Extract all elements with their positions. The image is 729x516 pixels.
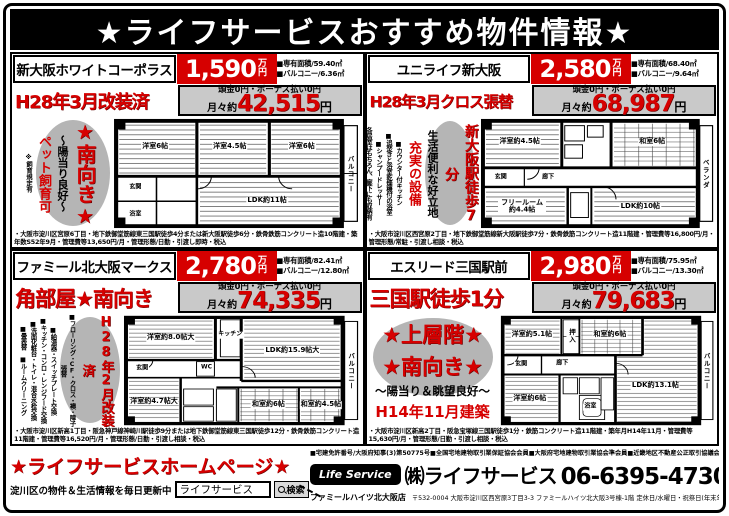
price-unit: 万円 bbox=[258, 60, 268, 79]
payment-box: 頭金0円・ボーナス払い0円 月々約 42,515 円 bbox=[178, 85, 362, 116]
feature-item: ■追焚きと浴室乾燥機付の浴室 bbox=[384, 117, 393, 230]
room-label: 洋室約4.5帖 bbox=[499, 139, 541, 147]
company-address: 〒532-0004 大阪市淀川区西宮原3丁目3-3 ファミールハイツ北大阪3号棟… bbox=[412, 493, 719, 502]
feature-equipment: 充実の設備 bbox=[404, 117, 423, 230]
spec-balcony: ■バルコニー/12.80㎡ bbox=[277, 266, 363, 276]
room-label: 和室6帖 bbox=[638, 139, 666, 147]
footer-homepage-block: ★ライフサービスホームページ★ 淀川区の物件＆生活情報を毎日更新中 検索 bbox=[10, 448, 310, 502]
feature-item: ■カウンター付キッチン bbox=[394, 117, 403, 230]
panel-subheader: 三国駅徒歩1分 頭金0円・ボーナス払い0円 月々約 79,683 円 bbox=[367, 281, 718, 314]
footer-company-block: ■宅建免許番号/大阪府知事(3)第50775号■全国宅地建物取引業保証協会会員■… bbox=[310, 448, 719, 502]
vertical-features: 新大阪駅徒歩7分 生活便利な好立地 充実の設備 ■カウンター付キッチン ■追焚き… bbox=[367, 117, 479, 230]
fine-print: ・大阪市淀川区宮原6丁目・地下鉄御堂筋線東三国駅徒歩4分または新大阪駅徒歩6分・… bbox=[12, 230, 363, 247]
catch-copy: H28年3月改装済 bbox=[12, 84, 177, 117]
feature-item: ■畳表替 ■ルームクリーニング bbox=[19, 314, 28, 427]
property-panel-shinosaka-white: 新大阪ホワイトコーポラス 1,590 万円 ■専有面積/59.40㎡ ■バルコニ… bbox=[10, 52, 365, 249]
feature-column: H28年2月改装済 ■フローリング・CF・クロス・襖・障子張替 ■給湯器・スイッ… bbox=[12, 314, 122, 427]
monthly-payment: 月々約 68,987 円 bbox=[562, 93, 687, 116]
feature-item: ■シャンプードレッサー bbox=[374, 117, 383, 230]
fine-print: ・大阪市淀川区新高2丁目・阪急宝塚線三国駅徒歩1分・鉄筋コンクリート造11階建・… bbox=[367, 427, 718, 444]
room-label: LDK約10帖 bbox=[620, 203, 661, 211]
feature-upper-floor: ★上層階★ bbox=[382, 319, 483, 349]
feature-item: ■給湯器・スイッチプレート交換 bbox=[49, 314, 58, 427]
room-label: フリールーム約4.4帖 bbox=[498, 199, 546, 214]
panel-subheader: 角部屋★南向き 頭金0円・ボーナス払い0円 月々約 74,335 円 bbox=[12, 281, 363, 314]
floorplan: 洋室約8.0帖大 キッチン LDK約15.9帖大 玄関 WC 洋室約4.7帖大 … bbox=[123, 315, 362, 426]
spec-area: ■専有面積/59.40㎡ bbox=[277, 59, 363, 69]
search-row: 淀川区の物件＆生活情報を毎日更新中 検索 bbox=[10, 481, 310, 498]
vertical-features: H28年2月改装済 ■フローリング・CF・クロス・襖・障子張替 ■給湯器・スイッ… bbox=[18, 314, 117, 427]
property-name: 新大阪ホワイトコーポラス bbox=[13, 55, 176, 83]
update-note: 淀川区の物件＆生活情報を毎日更新中 bbox=[10, 483, 172, 497]
room-label: 洋室4.5帖 bbox=[212, 143, 247, 151]
feature-pets-note: ※飼育規定有 bbox=[24, 117, 33, 230]
monthly-amount: 42,515 bbox=[237, 93, 320, 116]
company-logo: Life Service bbox=[310, 464, 401, 485]
monthly-unit: 円 bbox=[320, 101, 332, 113]
spec-balcony: ■バルコニー/9.64㎡ bbox=[631, 69, 717, 79]
room-label: 浴室 bbox=[583, 404, 597, 411]
payment-box: 頭金0円・ボーナス払い0円 月々約 79,683 円 bbox=[532, 282, 716, 313]
panel-header: ファミール北大阪マークス 2,780 万円 ■専有面積/82.41㎡ ■バルコニ… bbox=[12, 251, 363, 281]
room-label: 和室約4.5帖 bbox=[300, 401, 342, 409]
property-price: 2,780 万円 bbox=[177, 251, 277, 281]
price-unit: 万円 bbox=[612, 60, 622, 79]
monthly-prefix: 月々約 bbox=[207, 104, 237, 114]
room-label: LDK約13.1帖 bbox=[631, 382, 680, 390]
feature-sunlight: ～陽当り良好～ bbox=[54, 117, 70, 230]
room-label: 洋室約6帖 bbox=[512, 396, 547, 404]
monthly-unit: 円 bbox=[674, 101, 686, 113]
room-label: 廊下 bbox=[555, 361, 569, 368]
panel-subheader: H28年3月改装済 頭金0円・ボーナス払い0円 月々約 42,515 円 bbox=[12, 84, 363, 117]
property-panel-esleed-mikuni: エスリード三国駅前 2,980 万円 ■専有面積/75.95㎡ ■バルコニー/1… bbox=[365, 249, 720, 446]
balcony-label: バルコニー bbox=[701, 352, 710, 390]
room-label: LDK約11帖 bbox=[246, 197, 287, 205]
monthly-payment: 月々約 74,335 円 bbox=[207, 290, 332, 313]
feature-pets: ペット飼育可 bbox=[34, 117, 53, 230]
panel-main: ★上層階★ ★南向き★ ～陽当り＆眺望良好～ H14年11月建築 bbox=[367, 314, 718, 427]
room-label: 廊下 bbox=[541, 175, 555, 182]
monthly-prefix: 月々約 bbox=[562, 301, 592, 311]
monthly-amount: 74,335 bbox=[237, 290, 320, 313]
panel-main: H28年2月改装済 ■フローリング・CF・クロス・襖・障子張替 ■給湯器・スイッ… bbox=[12, 314, 363, 427]
monthly-payment: 月々約 79,683 円 bbox=[562, 290, 687, 313]
property-name: ユニライフ新大阪 bbox=[368, 55, 531, 83]
room-label: 玄関 bbox=[494, 175, 508, 182]
room-label: キッチン bbox=[217, 332, 243, 339]
company-row: Life Service ㈱ライフサービス 06-6395-4730(代) bbox=[310, 457, 719, 491]
room-label: WC bbox=[200, 365, 213, 372]
property-specs: ■専有面積/68.40㎡ ■バルコニー/9.64㎡ bbox=[631, 54, 717, 84]
floorplan-drawing bbox=[113, 118, 362, 229]
feature-facing: ★南向き★ bbox=[382, 351, 483, 381]
room-label: 浴室 bbox=[128, 211, 142, 218]
room-label: 和室約6帖 bbox=[592, 331, 627, 339]
monthly-amount: 79,683 bbox=[592, 290, 675, 313]
feature-column: ★南向き★ ～陽当り良好～ ペット飼育可 ※飼育規定有 bbox=[12, 117, 112, 230]
room-label: 洋室約4.7帖大 bbox=[129, 398, 178, 406]
property-panel-famille-marks: ファミール北大阪マークス 2,780 万円 ■専有面積/82.41㎡ ■バルコニ… bbox=[10, 249, 365, 446]
room-label: 洋室約8.0帖大 bbox=[146, 334, 195, 342]
catch-copy: H28年3月クロス張替 bbox=[367, 84, 532, 117]
spec-area: ■専有面積/82.41㎡ bbox=[277, 256, 363, 266]
property-specs: ■専有面積/75.95㎡ ■バルコニー/13.30㎡ bbox=[631, 251, 717, 281]
catch-copy: 三国駅徒歩1分 bbox=[367, 281, 532, 314]
price-amount: 2,580 bbox=[540, 55, 611, 83]
balcony-label: ベランダ bbox=[700, 159, 709, 189]
room-label: LDK約15.9帖大 bbox=[264, 347, 320, 355]
flyer-frame: ★ライフサービスおすすめ物件情報★ 新大阪ホワイトコーポラス 1,590 万円 … bbox=[3, 3, 726, 513]
monthly-amount: 68,987 bbox=[592, 93, 675, 116]
flyer-page: ★ライフサービスおすすめ物件情報★ 新大阪ホワイトコーポラス 1,590 万円 … bbox=[0, 0, 729, 516]
feature-view: ～陽当り＆眺望良好～ bbox=[375, 383, 490, 399]
balcony-label: バルコニー bbox=[345, 155, 354, 193]
page-title: ★ライフサービスおすすめ物件情報★ bbox=[10, 9, 719, 50]
floorplan: 洋室約5.1帖 押入 和室約6帖 玄関 廊下 洋室約6帖 浴室 LDK約13.1… bbox=[500, 315, 717, 426]
property-specs: ■専有面積/82.41㎡ ■バルコニー/12.80㎡ bbox=[277, 251, 363, 281]
room-label: 玄関 bbox=[514, 362, 528, 369]
spec-area: ■専有面積/75.95㎡ bbox=[631, 256, 717, 266]
feature-renovated: H28年2月改装済 bbox=[78, 314, 116, 427]
price-amount: 1,590 bbox=[185, 55, 256, 83]
feature-column: 新大阪駅徒歩7分 生活便利な好立地 充実の設備 ■カウンター付キッチン ■追焚き… bbox=[367, 117, 479, 230]
price-amount: 2,780 bbox=[185, 252, 256, 280]
feature-station: 新大阪駅徒歩7分 bbox=[441, 117, 479, 230]
panel-header: ユニライフ新大阪 2,580 万円 ■専有面積/68.40㎡ ■バルコニー/9.… bbox=[367, 54, 718, 84]
feature-facing: ★南向き★ bbox=[71, 117, 100, 230]
room-label: 洋室6帖 bbox=[141, 143, 169, 151]
catch-copy: 角部屋★南向き bbox=[12, 281, 177, 314]
feature-item: ■キッチン・コンロ・レンジフード交換 bbox=[39, 314, 48, 427]
monthly-prefix: 月々約 bbox=[562, 104, 592, 114]
search-input[interactable] bbox=[175, 481, 271, 498]
panel-header: 新大阪ホワイトコーポラス 1,590 万円 ■専有面積/59.40㎡ ■バルコニ… bbox=[12, 54, 363, 84]
room-label: 玄関 bbox=[128, 185, 142, 192]
property-price: 2,580 万円 bbox=[531, 54, 631, 84]
price-unit: 万円 bbox=[612, 257, 622, 276]
property-price: 2,980 万円 bbox=[531, 251, 631, 281]
company-name: ㈱ライフサービス bbox=[405, 460, 557, 489]
search-button[interactable]: 検索 bbox=[274, 481, 309, 498]
spec-balcony: ■バルコニー/6.36㎡ bbox=[277, 69, 363, 79]
payment-box: 頭金0円・ボーナス払い0円 月々約 68,987 円 bbox=[532, 85, 716, 116]
license-text: ■宅建免許番号/大阪府知事(3)第50775号■全国宅地建物取引業保証協会会員■… bbox=[310, 448, 719, 456]
panel-main: 新大阪駅徒歩7分 生活便利な好立地 充実の設備 ■カウンター付キッチン ■追焚き… bbox=[367, 117, 718, 230]
feature-item: ■洗面化粧台・トイレ・混合水栓交換 bbox=[29, 314, 38, 427]
fine-print: ・大阪市淀川区新高1丁目・阪急神戸線神崎川駅徒歩9分または地下鉄御堂筋線東三国駅… bbox=[12, 427, 363, 444]
vertical-features: ★南向き★ ～陽当り良好～ ペット飼育可 ※飼育規定有 bbox=[23, 117, 101, 230]
property-panel-unilife: ユニライフ新大阪 2,580 万円 ■専有面積/68.40㎡ ■バルコニー/9.… bbox=[365, 52, 720, 249]
panel-header: エスリード三国駅前 2,980 万円 ■専有面積/75.95㎡ ■バルコニー/1… bbox=[367, 251, 718, 281]
spec-area: ■専有面積/68.40㎡ bbox=[631, 59, 717, 69]
balcony-label: バルコニー bbox=[345, 352, 354, 390]
monthly-payment: 月々約 42,515 円 bbox=[207, 93, 332, 116]
property-grid: 新大阪ホワイトコーポラス 1,590 万円 ■専有面積/59.40㎡ ■バルコニ… bbox=[10, 52, 719, 446]
payment-box: 頭金0円・ボーナス払い0円 月々約 74,335 円 bbox=[178, 282, 362, 313]
feature-item: 各居室はもちろん、廊下にも収納有 bbox=[367, 117, 374, 230]
spec-balcony: ■バルコニー/13.30㎡ bbox=[631, 266, 717, 276]
price-unit: 万円 bbox=[258, 257, 268, 276]
room-label: 洋室6帖 bbox=[288, 143, 316, 151]
property-price: 1,590 万円 bbox=[177, 54, 277, 84]
property-name: エスリード三国駅前 bbox=[368, 252, 531, 280]
search-icon bbox=[278, 486, 285, 493]
branch-name: ファミールハイツ北大阪店 bbox=[310, 492, 406, 502]
room-label: 洋室約5.1帖 bbox=[511, 331, 553, 339]
feature-item: ■フローリング・CF・クロス・襖・障子張替 bbox=[59, 314, 77, 427]
feature-built: H14年11月建築 bbox=[375, 401, 489, 422]
branch-row: ファミールハイツ北大阪店 〒532-0004 大阪市淀川区西宮原3丁目3-3 フ… bbox=[310, 492, 719, 502]
phone-number: 06-6395-4730(代) bbox=[561, 457, 719, 491]
monthly-unit: 円 bbox=[674, 298, 686, 310]
monthly-unit: 円 bbox=[320, 298, 332, 310]
monthly-prefix: 月々約 bbox=[207, 301, 237, 311]
property-specs: ■専有面積/59.40㎡ ■バルコニー/6.36㎡ bbox=[277, 54, 363, 84]
panel-main: ★南向き★ ～陽当り良好～ ペット飼育可 ※飼育規定有 bbox=[12, 117, 363, 230]
feature-column: ★上層階★ ★南向き★ ～陽当り＆眺望良好～ H14年11月建築 bbox=[367, 314, 499, 427]
homepage-title: ★ライフサービスホームページ★ bbox=[10, 452, 310, 479]
room-label: 玄関 bbox=[135, 366, 149, 373]
floorplan: 洋室6帖 洋室4.5帖 洋室6帖 LDK約11帖 玄関 浴室 バルコニー bbox=[113, 118, 362, 229]
feature-location: 生活便利な好立地 bbox=[424, 117, 440, 230]
footer: ★ライフサービスホームページ★ 淀川区の物件＆生活情報を毎日更新中 検索 ■宅建… bbox=[10, 448, 719, 502]
price-amount: 2,980 bbox=[540, 252, 611, 280]
room-label: 押入 bbox=[566, 329, 575, 344]
floorplan: 洋室約4.5帖 和室6帖 玄関 廊下 フリールーム約4.4帖 LDK約10帖 ベ… bbox=[480, 118, 717, 229]
fine-print: ・大阪市淀川区西宮原2丁目・地下鉄御堂筋線新大阪駅徒歩7分・鉄骨鉄筋コンクリート… bbox=[367, 230, 718, 247]
panel-subheader: H28年3月クロス張替 頭金0円・ボーナス払い0円 月々約 68,987 円 bbox=[367, 84, 718, 117]
room-label: 和室約6帖 bbox=[251, 401, 286, 409]
property-name: ファミール北大阪マークス bbox=[13, 252, 176, 280]
